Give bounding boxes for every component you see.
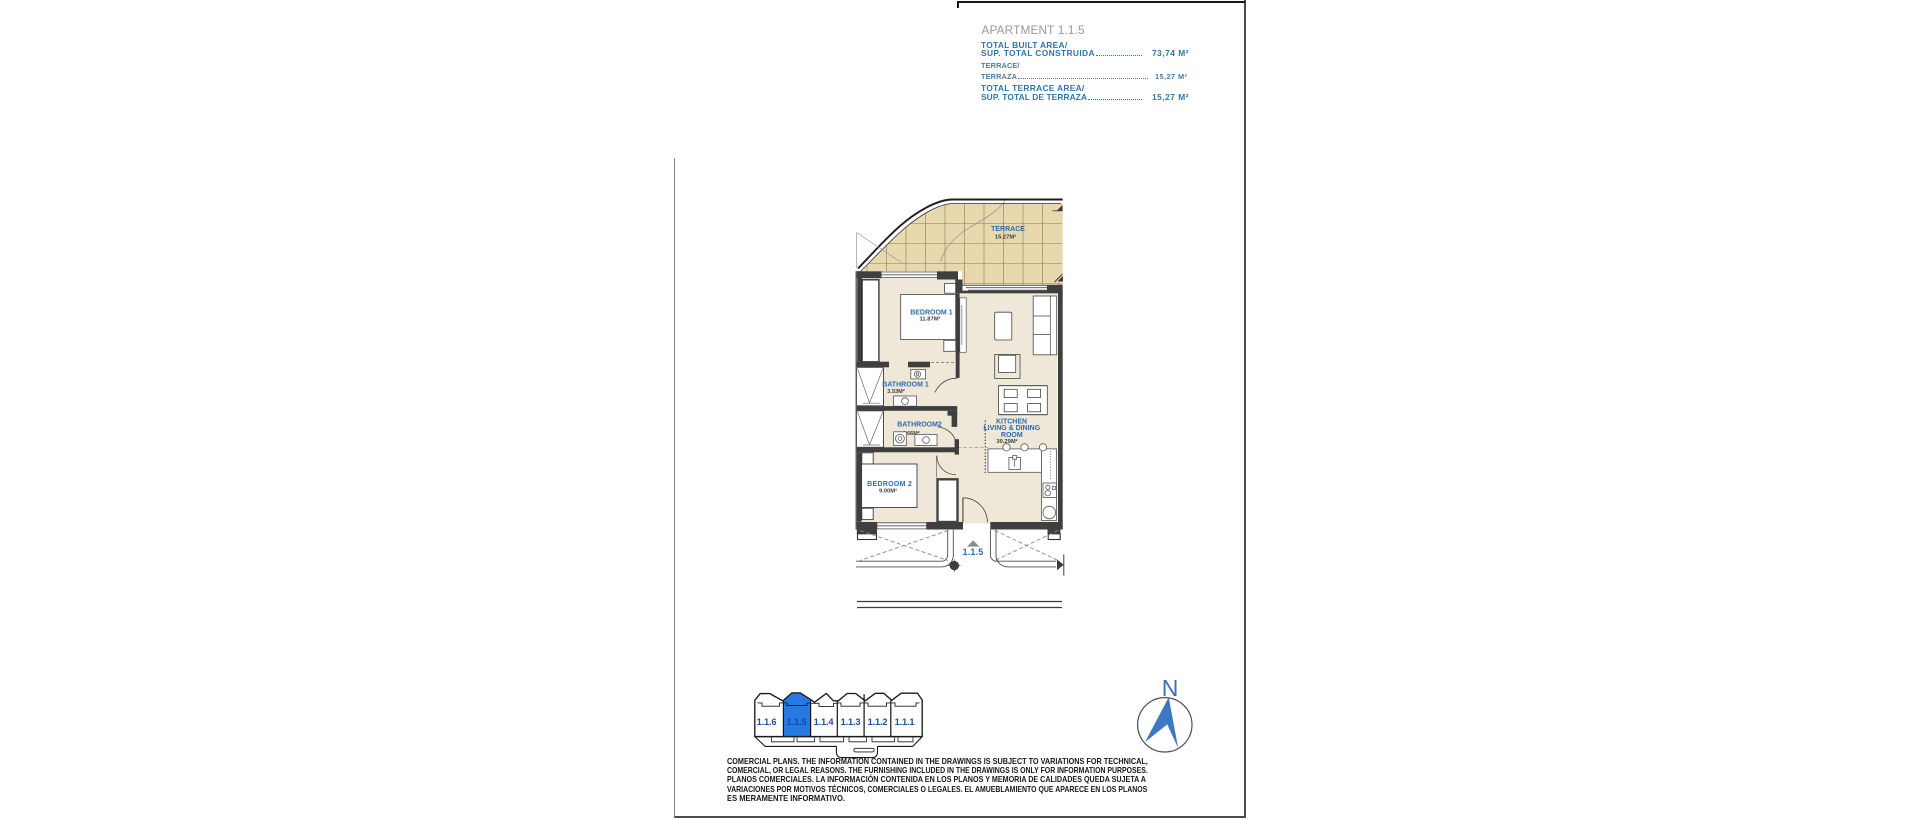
svg-text:9.00M²: 9.00M² xyxy=(879,488,897,495)
svg-text:BATHROOM2: BATHROOM2 xyxy=(897,422,942,429)
svg-text:TERRACE: TERRACE xyxy=(991,226,1025,233)
svg-text:1.1.4: 1.1.4 xyxy=(814,717,835,727)
svg-text:1.1.5: 1.1.5 xyxy=(787,717,807,727)
svg-text:N: N xyxy=(1162,675,1179,701)
svg-text:1.1.2: 1.1.2 xyxy=(868,717,888,727)
svg-text:15.27M²: 15.27M² xyxy=(995,234,1016,241)
svg-text:11.87M²: 11.87M² xyxy=(920,316,941,323)
svg-text:1.1.3: 1.1.3 xyxy=(841,717,861,727)
svg-text:BEDROOM 2: BEDROOM 2 xyxy=(867,481,912,488)
svg-text:1.1.5: 1.1.5 xyxy=(962,547,983,557)
svg-text:ROOM: ROOM xyxy=(1001,432,1023,439)
svg-text:BATHROOM 1: BATHROOM 1 xyxy=(882,381,929,388)
svg-text:BEDROOM 1: BEDROOM 1 xyxy=(910,310,953,317)
svg-text:3.53M²: 3.53M² xyxy=(887,388,905,395)
svg-text:1.1.6: 1.1.6 xyxy=(757,717,777,727)
svg-text:1.1.1: 1.1.1 xyxy=(895,717,915,727)
